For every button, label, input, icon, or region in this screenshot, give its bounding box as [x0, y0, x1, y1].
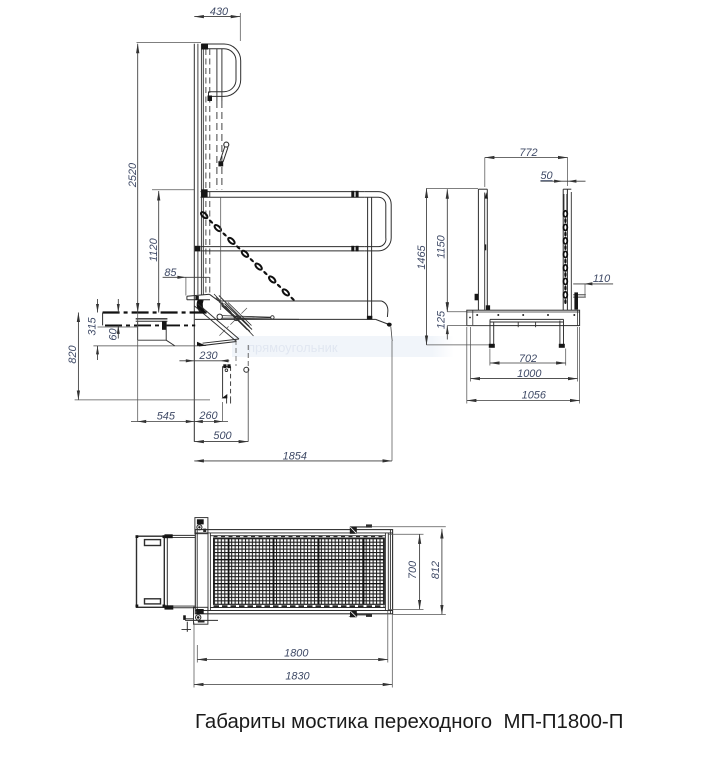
svg-text:430: 430 — [210, 6, 228, 18]
svg-text:702: 702 — [519, 353, 537, 365]
svg-text:1150: 1150 — [435, 235, 447, 258]
svg-text:315: 315 — [86, 316, 98, 335]
svg-text:1000: 1000 — [517, 368, 541, 380]
svg-text:230: 230 — [198, 350, 217, 362]
svg-text:125: 125 — [435, 310, 447, 329]
svg-text:260: 260 — [198, 410, 217, 422]
svg-text:1800: 1800 — [284, 648, 308, 660]
svg-text:85: 85 — [164, 267, 177, 279]
svg-text:545: 545 — [157, 411, 176, 423]
svg-text:772: 772 — [519, 147, 537, 159]
svg-text:1056: 1056 — [522, 389, 547, 401]
svg-text:812: 812 — [430, 561, 442, 579]
svg-text:500: 500 — [213, 430, 231, 442]
svg-text:50: 50 — [540, 170, 552, 182]
svg-text:110: 110 — [593, 273, 610, 285]
svg-text:1830: 1830 — [285, 671, 309, 683]
svg-text:1120: 1120 — [148, 238, 160, 261]
svg-text:прямоугольник: прямоугольник — [248, 340, 338, 355]
svg-text:60: 60 — [107, 328, 119, 340]
svg-text:1854: 1854 — [283, 450, 307, 462]
svg-text:Габариты мостика переходного: Габариты мостика переходного МП-П1800-П — [195, 711, 623, 733]
svg-text:2520: 2520 — [127, 163, 139, 188]
svg-text:700: 700 — [407, 561, 419, 579]
svg-text:820: 820 — [67, 345, 79, 363]
svg-text:1465: 1465 — [416, 244, 428, 269]
